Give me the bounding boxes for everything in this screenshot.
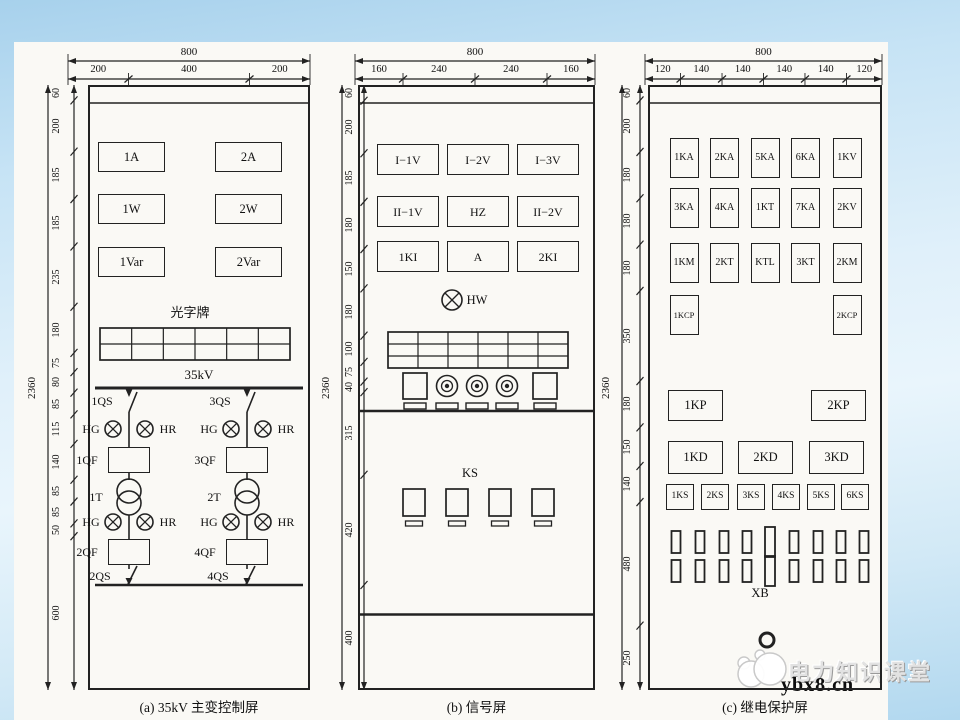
signal-relay-label: KS bbox=[450, 464, 490, 482]
breaker-label: 1QF bbox=[70, 451, 104, 469]
meter-box: 2KI bbox=[517, 241, 579, 272]
breaker-label: 3QF bbox=[188, 451, 222, 469]
dim-arrow bbox=[71, 682, 77, 690]
disconnect-label: 1QS bbox=[80, 392, 124, 410]
dim-width-seg: 400 bbox=[168, 61, 210, 79]
meter-box: II−1V bbox=[377, 196, 439, 227]
dim-height-seg: 180 bbox=[342, 292, 358, 332]
dim-total-height: 2360 bbox=[318, 368, 334, 408]
relay-box: 3KA bbox=[670, 188, 699, 228]
meter-box: 2A bbox=[215, 142, 282, 172]
breaker-box bbox=[108, 447, 150, 473]
dim-width-seg: 200 bbox=[77, 61, 119, 79]
meter-box: A bbox=[447, 241, 509, 272]
relay-box: 1KCP bbox=[670, 295, 699, 335]
relay-box: 1KT bbox=[751, 188, 780, 228]
dim-width-seg: 140 bbox=[680, 61, 722, 79]
lamp-label: HW bbox=[459, 291, 495, 309]
dim-height-seg: 200 bbox=[620, 106, 636, 146]
dim-width-seg: 140 bbox=[763, 61, 805, 79]
relay-box-wide: 2KD bbox=[738, 441, 793, 474]
lamp-label: HR bbox=[153, 420, 183, 438]
dim-height-seg: 315 bbox=[342, 413, 358, 453]
lamp-label: HR bbox=[153, 513, 183, 531]
panel-caption: (c) 继电保护屏 bbox=[645, 699, 885, 717]
dim-height-seg: 150 bbox=[620, 427, 636, 467]
relay-box: 2KM bbox=[833, 243, 862, 283]
dim-height-seg: 200 bbox=[342, 107, 358, 147]
dim-height-seg: 180 bbox=[620, 155, 636, 195]
signal-relay-box: 2KS bbox=[701, 484, 729, 510]
dim-arrow bbox=[619, 682, 625, 690]
breaker-box bbox=[226, 539, 268, 565]
dim-total-width: 800 bbox=[734, 43, 794, 61]
breaker-label: 2QF bbox=[70, 543, 104, 561]
lamp-label: HG bbox=[194, 420, 224, 438]
relay-box-wide: 3KD bbox=[809, 441, 864, 474]
dim-height-seg: 180 bbox=[620, 384, 636, 424]
dim-height-seg: 400 bbox=[342, 618, 358, 658]
dim-height-seg: 140 bbox=[620, 464, 636, 504]
breaker-label: 4QF bbox=[188, 543, 222, 561]
signal-relay-box: 6KS bbox=[841, 484, 869, 510]
dim-height-seg: 180 bbox=[342, 205, 358, 245]
signal-relay-box: 1KS bbox=[666, 484, 694, 510]
dim-height-seg: 250 bbox=[620, 638, 636, 678]
dim-arrow bbox=[339, 682, 345, 690]
bus-voltage-label: 35kV bbox=[169, 365, 229, 383]
lamp-label: HR bbox=[271, 420, 301, 438]
panel-caption: (a) 35kV 主变控制屏 bbox=[79, 699, 319, 717]
meter-box: HZ bbox=[447, 196, 509, 227]
meter-box: II−2V bbox=[517, 196, 579, 227]
relay-box: 1KM bbox=[670, 243, 699, 283]
dim-height-seg: 50 bbox=[49, 510, 65, 550]
dim-width-seg: 120 bbox=[843, 61, 885, 79]
dim-width-seg: 240 bbox=[418, 61, 460, 79]
dim-arrow bbox=[71, 85, 77, 93]
dim-height-seg: 420 bbox=[342, 510, 358, 550]
meter-box: 1A bbox=[98, 142, 165, 172]
dim-total-height: 2360 bbox=[598, 368, 614, 408]
relay-box-wide: 2KP bbox=[811, 390, 866, 421]
relay-box: 1KV bbox=[833, 138, 862, 178]
meter-box: 1KI bbox=[377, 241, 439, 272]
dim-arrow bbox=[68, 76, 76, 82]
meter-box: 2W bbox=[215, 194, 282, 224]
dim-total-width: 800 bbox=[445, 43, 505, 61]
breaker-box bbox=[108, 539, 150, 565]
relay-box: KTL bbox=[751, 243, 780, 283]
relay-box: 7KA bbox=[791, 188, 820, 228]
panel-b-outline bbox=[358, 85, 595, 690]
relay-box-wide: 1KD bbox=[668, 441, 723, 474]
lamp-label: HR bbox=[271, 513, 301, 531]
dim-height-seg: 40 bbox=[342, 367, 358, 407]
dim-height-seg: 200 bbox=[49, 106, 65, 146]
relay-box: 5KA bbox=[751, 138, 780, 178]
dim-arrow bbox=[637, 85, 643, 93]
disconnect-label: 4QS bbox=[196, 567, 240, 585]
breaker-box bbox=[226, 447, 268, 473]
dim-height-seg: 600 bbox=[49, 593, 65, 633]
meter-box: I−1V bbox=[377, 144, 439, 175]
dim-arrow bbox=[637, 682, 643, 690]
relay-box: 2KT bbox=[710, 243, 739, 283]
terminal-strip-label: XB bbox=[742, 584, 778, 602]
transformer-label: 2T bbox=[201, 488, 227, 506]
dim-height-seg: 185 bbox=[49, 155, 65, 195]
relay-box-wide: 1KP bbox=[668, 390, 723, 421]
meter-box: I−2V bbox=[447, 144, 509, 175]
dim-total-width: 800 bbox=[159, 43, 219, 61]
relay-box: 3KT bbox=[791, 243, 820, 283]
signal-relay-box: 3KS bbox=[737, 484, 765, 510]
transformer-label: 1T bbox=[83, 488, 109, 506]
dim-width-seg: 140 bbox=[805, 61, 847, 79]
dim-height-seg: 185 bbox=[342, 158, 358, 198]
lamp-label: HG bbox=[194, 513, 224, 531]
light-plate-title: 光字牌 bbox=[145, 303, 235, 321]
meter-box: 1Var bbox=[98, 247, 165, 277]
dim-height-seg: 350 bbox=[620, 316, 636, 356]
dim-total-height: 2360 bbox=[24, 368, 40, 408]
panel-caption: (b) 信号屏 bbox=[357, 699, 597, 717]
signal-relay-box: 5KS bbox=[807, 484, 835, 510]
relay-box: 6KA bbox=[791, 138, 820, 178]
lamp-label: HG bbox=[76, 513, 106, 531]
relay-box: 2KA bbox=[710, 138, 739, 178]
dim-height-seg: 180 bbox=[620, 201, 636, 241]
meter-box: 2Var bbox=[215, 247, 282, 277]
relay-box: 1KA bbox=[670, 138, 699, 178]
dim-height-seg: 235 bbox=[49, 257, 65, 297]
disconnect-label: 3QS bbox=[198, 392, 242, 410]
dim-width-seg: 160 bbox=[550, 61, 592, 79]
dim-height-seg: 180 bbox=[620, 248, 636, 288]
dim-width-seg: 160 bbox=[358, 61, 400, 79]
dim-arrow bbox=[302, 58, 310, 64]
dim-height-seg: 185 bbox=[49, 203, 65, 243]
dim-arrow bbox=[68, 58, 76, 64]
relay-box: 2KV bbox=[833, 188, 862, 228]
meter-box: 1W bbox=[98, 194, 165, 224]
meter-box: I−3V bbox=[517, 144, 579, 175]
slide-background: 电力知识课堂 ybx8.cn 8002004002002360602001851… bbox=[0, 0, 960, 720]
dim-width-seg: 240 bbox=[490, 61, 532, 79]
dim-arrow bbox=[45, 682, 51, 690]
panel-a-outline bbox=[88, 85, 310, 690]
dim-height-seg: 480 bbox=[620, 544, 636, 584]
dim-width-seg: 200 bbox=[259, 61, 301, 79]
relay-box: 2KCP bbox=[833, 295, 862, 335]
lamp-label: HG bbox=[76, 420, 106, 438]
disconnect-label: 2QS bbox=[78, 567, 122, 585]
relay-box: 4KA bbox=[710, 188, 739, 228]
dim-arrow bbox=[302, 76, 310, 82]
dim-width-seg: 140 bbox=[722, 61, 764, 79]
dim-height-seg: 150 bbox=[342, 249, 358, 289]
dim-width-seg: 120 bbox=[642, 61, 684, 79]
signal-relay-box: 4KS bbox=[772, 484, 800, 510]
